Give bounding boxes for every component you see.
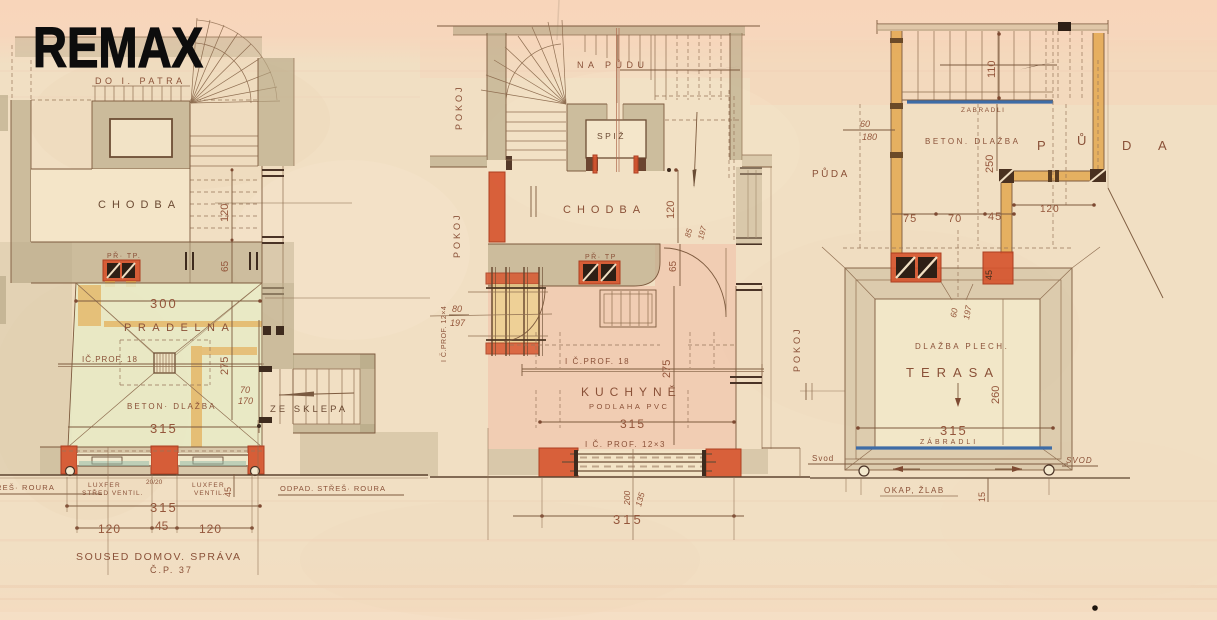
svg-text:20/20: 20/20 [146, 479, 163, 486]
svg-text:70: 70 [948, 213, 962, 225]
svg-text:SVOD: SVOD [1066, 456, 1093, 465]
svg-text:170: 170 [238, 396, 253, 406]
svg-text:275: 275 [661, 360, 673, 378]
svg-text:SOUSED DOMOV. SPRÁVA: SOUSED DOMOV. SPRÁVA [76, 550, 242, 563]
svg-text:120: 120 [665, 201, 677, 219]
svg-text:P: P [1037, 138, 1046, 153]
svg-text:PRADELNA: PRADELNA [124, 322, 235, 334]
svg-text:CHODBA: CHODBA [98, 199, 181, 211]
svg-text:I Č.PROF. 18: I Č.PROF. 18 [565, 357, 630, 366]
svg-text:120: 120 [1040, 204, 1060, 215]
svg-text:45: 45 [223, 487, 233, 497]
svg-text:ŘEŠ· ROURA: ŘEŠ· ROURA [0, 483, 55, 492]
svg-text:PODLAHA PVC: PODLAHA PVC [589, 402, 669, 411]
svg-text:POKOJ: POKOJ [452, 212, 462, 258]
svg-text:BETON· DLAŽBA: BETON· DLAŽBA [127, 402, 216, 411]
svg-text:315: 315 [940, 423, 968, 438]
svg-text:LUXFER: LUXFER [192, 482, 225, 489]
svg-text:15: 15 [977, 492, 987, 502]
svg-text:LUXFER: LUXFER [88, 482, 121, 489]
svg-text:315: 315 [613, 512, 644, 527]
svg-text:I Č. PROF. 12×3: I Č. PROF. 12×3 [585, 440, 666, 449]
svg-text:A: A [1158, 138, 1167, 153]
svg-text:110: 110 [986, 60, 998, 78]
svg-text:VENTIL.: VENTIL. [194, 490, 226, 497]
svg-text:45: 45 [155, 519, 169, 533]
svg-text:OKAP, ŽLAB: OKAP, ŽLAB [884, 486, 945, 495]
svg-text:315: 315 [150, 500, 178, 515]
svg-text:45: 45 [984, 270, 994, 280]
svg-text:Svod: Svod [812, 454, 834, 463]
svg-text:D: D [1122, 138, 1131, 153]
svg-text:BETON. DLAŽBA: BETON. DLAŽBA [925, 137, 1020, 146]
svg-text:120: 120 [219, 204, 231, 222]
svg-text:POKOJ: POKOJ [454, 84, 464, 130]
svg-text:ZE SKLEPA: ZE SKLEPA [270, 404, 348, 415]
svg-text:ZÁBRADLI: ZÁBRADLI [920, 437, 978, 446]
svg-text:TERASA: TERASA [906, 365, 1000, 380]
svg-text:45: 45 [988, 211, 1002, 223]
svg-text:ZABRADLI: ZABRADLI [961, 107, 1006, 114]
svg-text:PŘ· TP: PŘ· TP [585, 252, 617, 261]
svg-text:POKOJ: POKOJ [792, 326, 802, 372]
svg-text:300: 300 [150, 296, 178, 311]
svg-text:STŘED VENTIL.: STŘED VENTIL. [82, 488, 143, 497]
svg-text:275: 275 [219, 357, 231, 375]
svg-text:70: 70 [240, 385, 250, 395]
svg-text:PŮDA: PŮDA [812, 167, 850, 180]
svg-text:65: 65 [220, 260, 231, 272]
svg-text:197: 197 [450, 318, 466, 328]
svg-text:65: 65 [668, 260, 679, 272]
svg-text:80: 80 [452, 304, 462, 314]
svg-text:KUCHYNĚ: KUCHYNĚ [581, 384, 682, 399]
svg-text:Ů: Ů [1077, 133, 1086, 148]
svg-text:120: 120 [98, 522, 121, 536]
svg-text:CHODBA: CHODBA [563, 204, 646, 216]
svg-text:Č.P. 37: Č.P. 37 [150, 565, 193, 575]
svg-text:60: 60 [860, 119, 870, 129]
svg-text:ODPAD. STŘEŠ· ROURA: ODPAD. STŘEŠ· ROURA [280, 484, 386, 493]
svg-text:260: 260 [990, 386, 1002, 404]
svg-text:NA PŮDU: NA PŮDU [577, 59, 649, 70]
svg-text:60: 60 [948, 307, 960, 318]
svg-text:DLAŽBA PLECH.: DLAŽBA PLECH. [915, 342, 1009, 351]
svg-text:PŘ· TP.: PŘ· TP. [107, 251, 141, 260]
svg-text:REMAX: REMAX [33, 16, 203, 80]
svg-text:180: 180 [862, 132, 877, 142]
svg-text:200: 200 [622, 491, 632, 506]
svg-text:IČ.PROF. 18: IČ.PROF. 18 [82, 355, 138, 364]
svg-text:75: 75 [903, 213, 917, 225]
svg-text:250: 250 [984, 155, 996, 173]
svg-text:SPIŽ: SPIŽ [597, 131, 626, 141]
svg-text:120: 120 [199, 522, 222, 536]
svg-text:I Č.PROF. 12×4: I Č.PROF. 12×4 [439, 306, 448, 362]
svg-text:315: 315 [620, 417, 646, 431]
svg-text:315: 315 [150, 421, 178, 436]
